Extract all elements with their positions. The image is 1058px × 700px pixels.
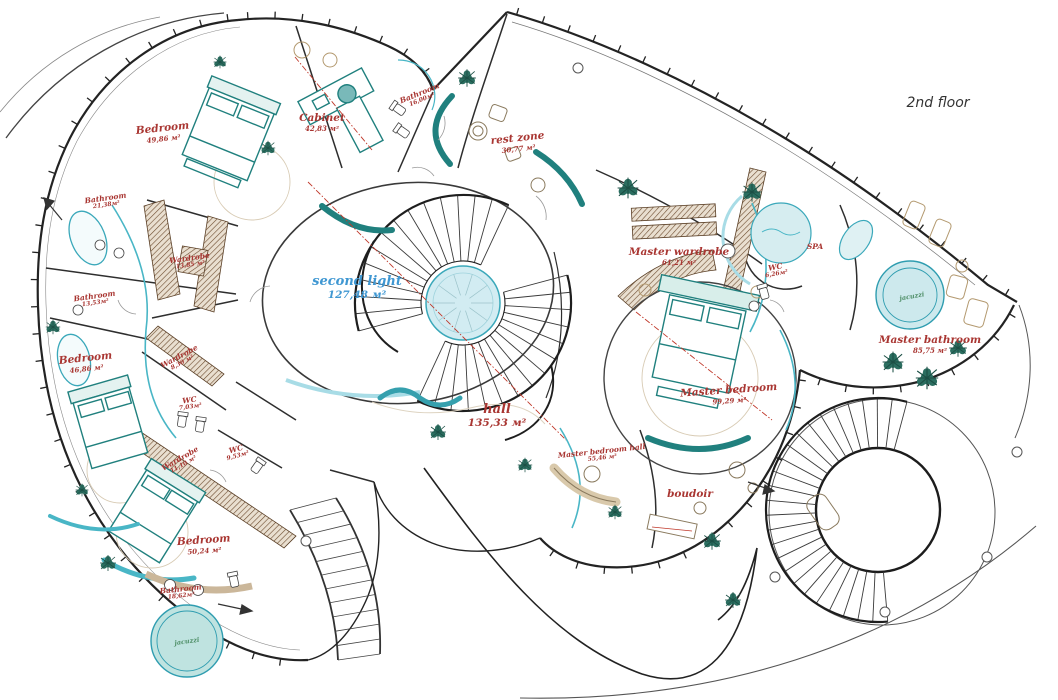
outer-walls <box>38 12 1017 660</box>
furniture <box>50 42 989 580</box>
floor-plan: Bedroom49,86 м²Cabinet42,83 м²Bathroom16… <box>0 0 1058 700</box>
plants <box>46 56 967 608</box>
bed-top-left <box>177 76 281 191</box>
boudoir-furniture <box>647 462 842 539</box>
atrium <box>250 166 567 440</box>
plan-drawing <box>0 0 1058 700</box>
site-curves <box>0 13 1036 698</box>
cabinet-desk <box>298 68 396 167</box>
bed-left <box>68 375 150 469</box>
floor-title: 2nd floor <box>906 95 969 111</box>
water-features <box>53 203 944 677</box>
wall-ticks <box>31 8 1016 666</box>
master-bed <box>637 275 760 412</box>
stair-steps <box>290 195 907 660</box>
